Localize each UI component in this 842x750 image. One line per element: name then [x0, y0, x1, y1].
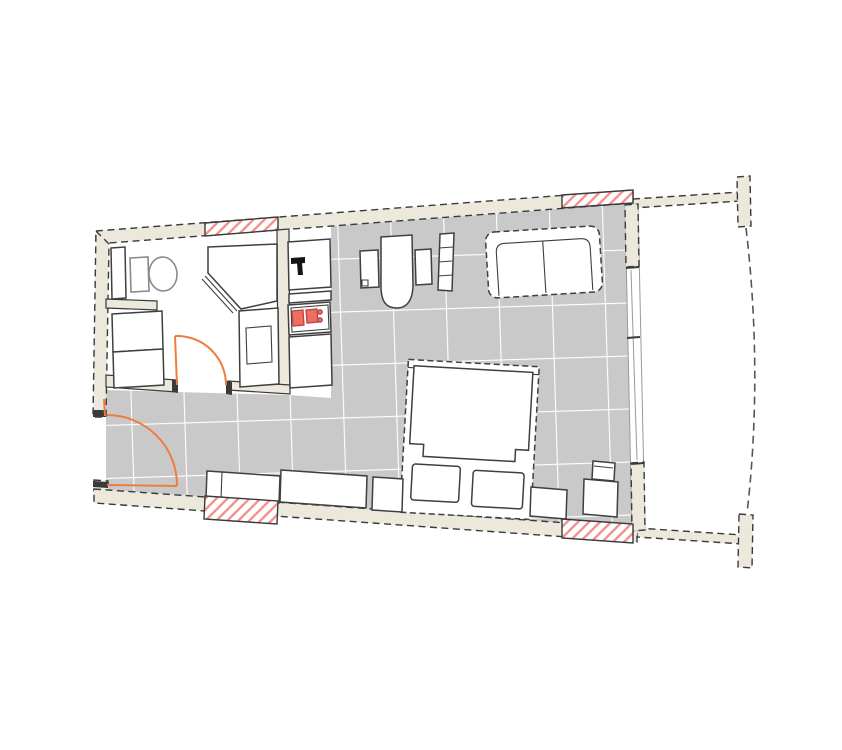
stove: two-burner-stove — [288, 302, 331, 335]
balcony-parapet-top-cap — [737, 176, 751, 227]
floor-plan-page: curved-balcony tiled-floor window-wall — [0, 0, 842, 750]
radiator: radiator — [111, 247, 126, 299]
washer-unit-bottom — [113, 349, 164, 388]
vanity-counter — [239, 308, 279, 387]
desk-right-unit — [415, 249, 432, 285]
stove-knob-1 — [318, 310, 322, 314]
nightstand-top-box — [592, 461, 615, 481]
bed-duvet — [409, 366, 533, 463]
window-mullion-1 — [626, 267, 639, 268]
kitchen-cabinet: kitchen-cabinet — [289, 334, 332, 388]
burner-right — [306, 309, 318, 323]
sofa: two-seat-sofa — [485, 226, 603, 299]
faucet-icon — [291, 257, 305, 264]
balcony-parapet-bottom-cap — [738, 514, 753, 568]
vanity: sink-vanity — [239, 308, 279, 387]
kitchen-divider-shelf — [289, 291, 331, 303]
nightstand-body — [583, 479, 618, 517]
washer-unit-top — [112, 311, 163, 352]
pillow-left — [411, 464, 461, 503]
low-cabinet: low-cabinet — [530, 487, 567, 519]
kitchen-sink-unit: kitchen-sink-unit — [288, 239, 331, 290]
floor-plan-drawing: curved-balcony tiled-floor window-wall — [0, 0, 842, 750]
bed: double-bed — [400, 359, 539, 519]
wall-shelf: wall-shelf — [438, 233, 454, 291]
hatch-bottom-right — [562, 519, 633, 543]
wall-right-top-segment — [625, 204, 639, 267]
wall-left — [93, 231, 109, 417]
hatch-bottom-left — [204, 496, 278, 524]
window-mullion-3 — [631, 463, 644, 464]
kitchen: kitchen-sink-unit two-burner-stove kitch… — [288, 239, 332, 388]
burner-left — [292, 310, 304, 326]
pillow-right — [471, 470, 524, 509]
desk-left-unit — [360, 250, 379, 288]
washer-dryer: washer-dryer-stack — [112, 311, 164, 388]
bench: bench — [372, 477, 403, 512]
toilet-cistern — [130, 257, 149, 292]
entry-door-jamb-bottom — [93, 481, 108, 488]
entry-door-frame-tick — [104, 399, 105, 416]
faucet-spout-icon — [297, 263, 303, 275]
wall-bathroom-stub — [106, 299, 157, 310]
chair — [381, 235, 413, 308]
toilet: toilet — [130, 256, 178, 292]
kitchen-sink-counter — [288, 239, 331, 290]
stove-knob-2 — [318, 318, 322, 322]
window-mullion-2 — [627, 337, 640, 338]
wall-right-bottom-segment — [631, 462, 645, 531]
entry-door-leaf — [107, 485, 177, 486]
sideboard-b — [280, 470, 367, 508]
